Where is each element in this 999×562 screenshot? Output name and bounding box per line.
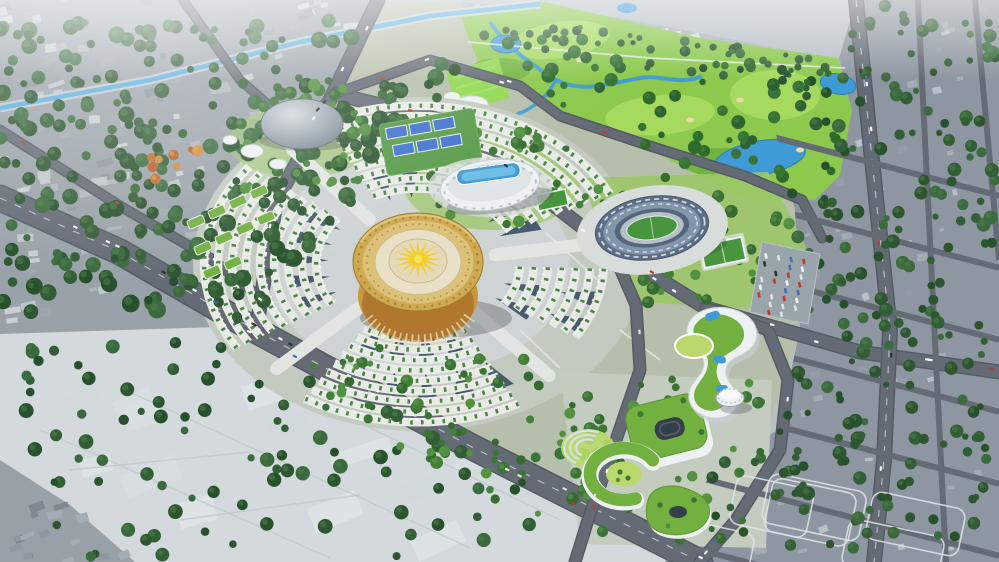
wellness-courtyard [675, 334, 713, 358]
scene-svg: Aerial 3D masterplan rendering of a spor… [0, 0, 999, 562]
sand-bunker [736, 98, 744, 103]
east-parking-lot [750, 242, 820, 324]
sand-bunker [686, 118, 694, 123]
sand-bunker [796, 148, 804, 153]
masterplan-render: Aerial 3D masterplan rendering of a spor… [0, 0, 999, 562]
blob-courtyard [669, 506, 687, 518]
northwest-haze [0, 0, 620, 320]
